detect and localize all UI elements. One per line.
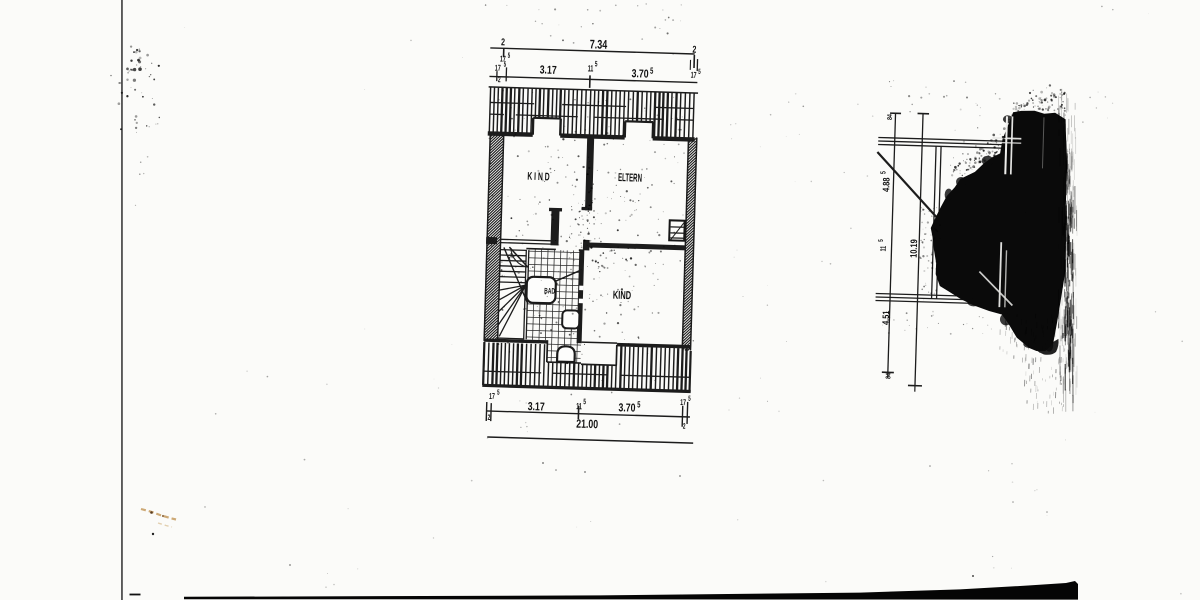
svg-text:10.19: 10.19	[908, 239, 920, 258]
svg-text:2: 2	[692, 43, 696, 55]
svg-text:5: 5	[637, 399, 641, 410]
svg-text:ELTERN: ELTERN	[618, 171, 642, 184]
svg-text:BAD: BAD	[544, 287, 555, 296]
svg-text:5: 5	[595, 60, 598, 69]
svg-text:3.17: 3.17	[539, 64, 557, 77]
svg-text:5: 5	[650, 65, 654, 76]
svg-text:21.00: 21.00	[576, 417, 598, 431]
svg-text:17: 17	[495, 65, 501, 74]
svg-text:7.34: 7.34	[589, 38, 607, 52]
svg-text:17: 17	[489, 393, 495, 402]
svg-text:2: 2	[487, 414, 490, 423]
svg-text:84: 84	[885, 372, 893, 379]
svg-text:2: 2	[683, 423, 686, 432]
svg-text:17: 17	[691, 72, 697, 81]
svg-text:11: 11	[588, 63, 594, 74]
svg-text:2: 2	[501, 36, 505, 48]
svg-text:3.70: 3.70	[631, 68, 649, 81]
svg-text:84: 84	[886, 114, 894, 121]
svg-text:K I N D: K I N D	[527, 170, 550, 183]
svg-text:5: 5	[583, 398, 586, 407]
svg-text:5: 5	[880, 171, 888, 174]
svg-text:KIND: KIND	[613, 289, 632, 303]
svg-text:11: 11	[880, 246, 888, 252]
svg-text:3.70: 3.70	[618, 402, 636, 415]
svg-text:4.88: 4.88	[880, 177, 892, 192]
